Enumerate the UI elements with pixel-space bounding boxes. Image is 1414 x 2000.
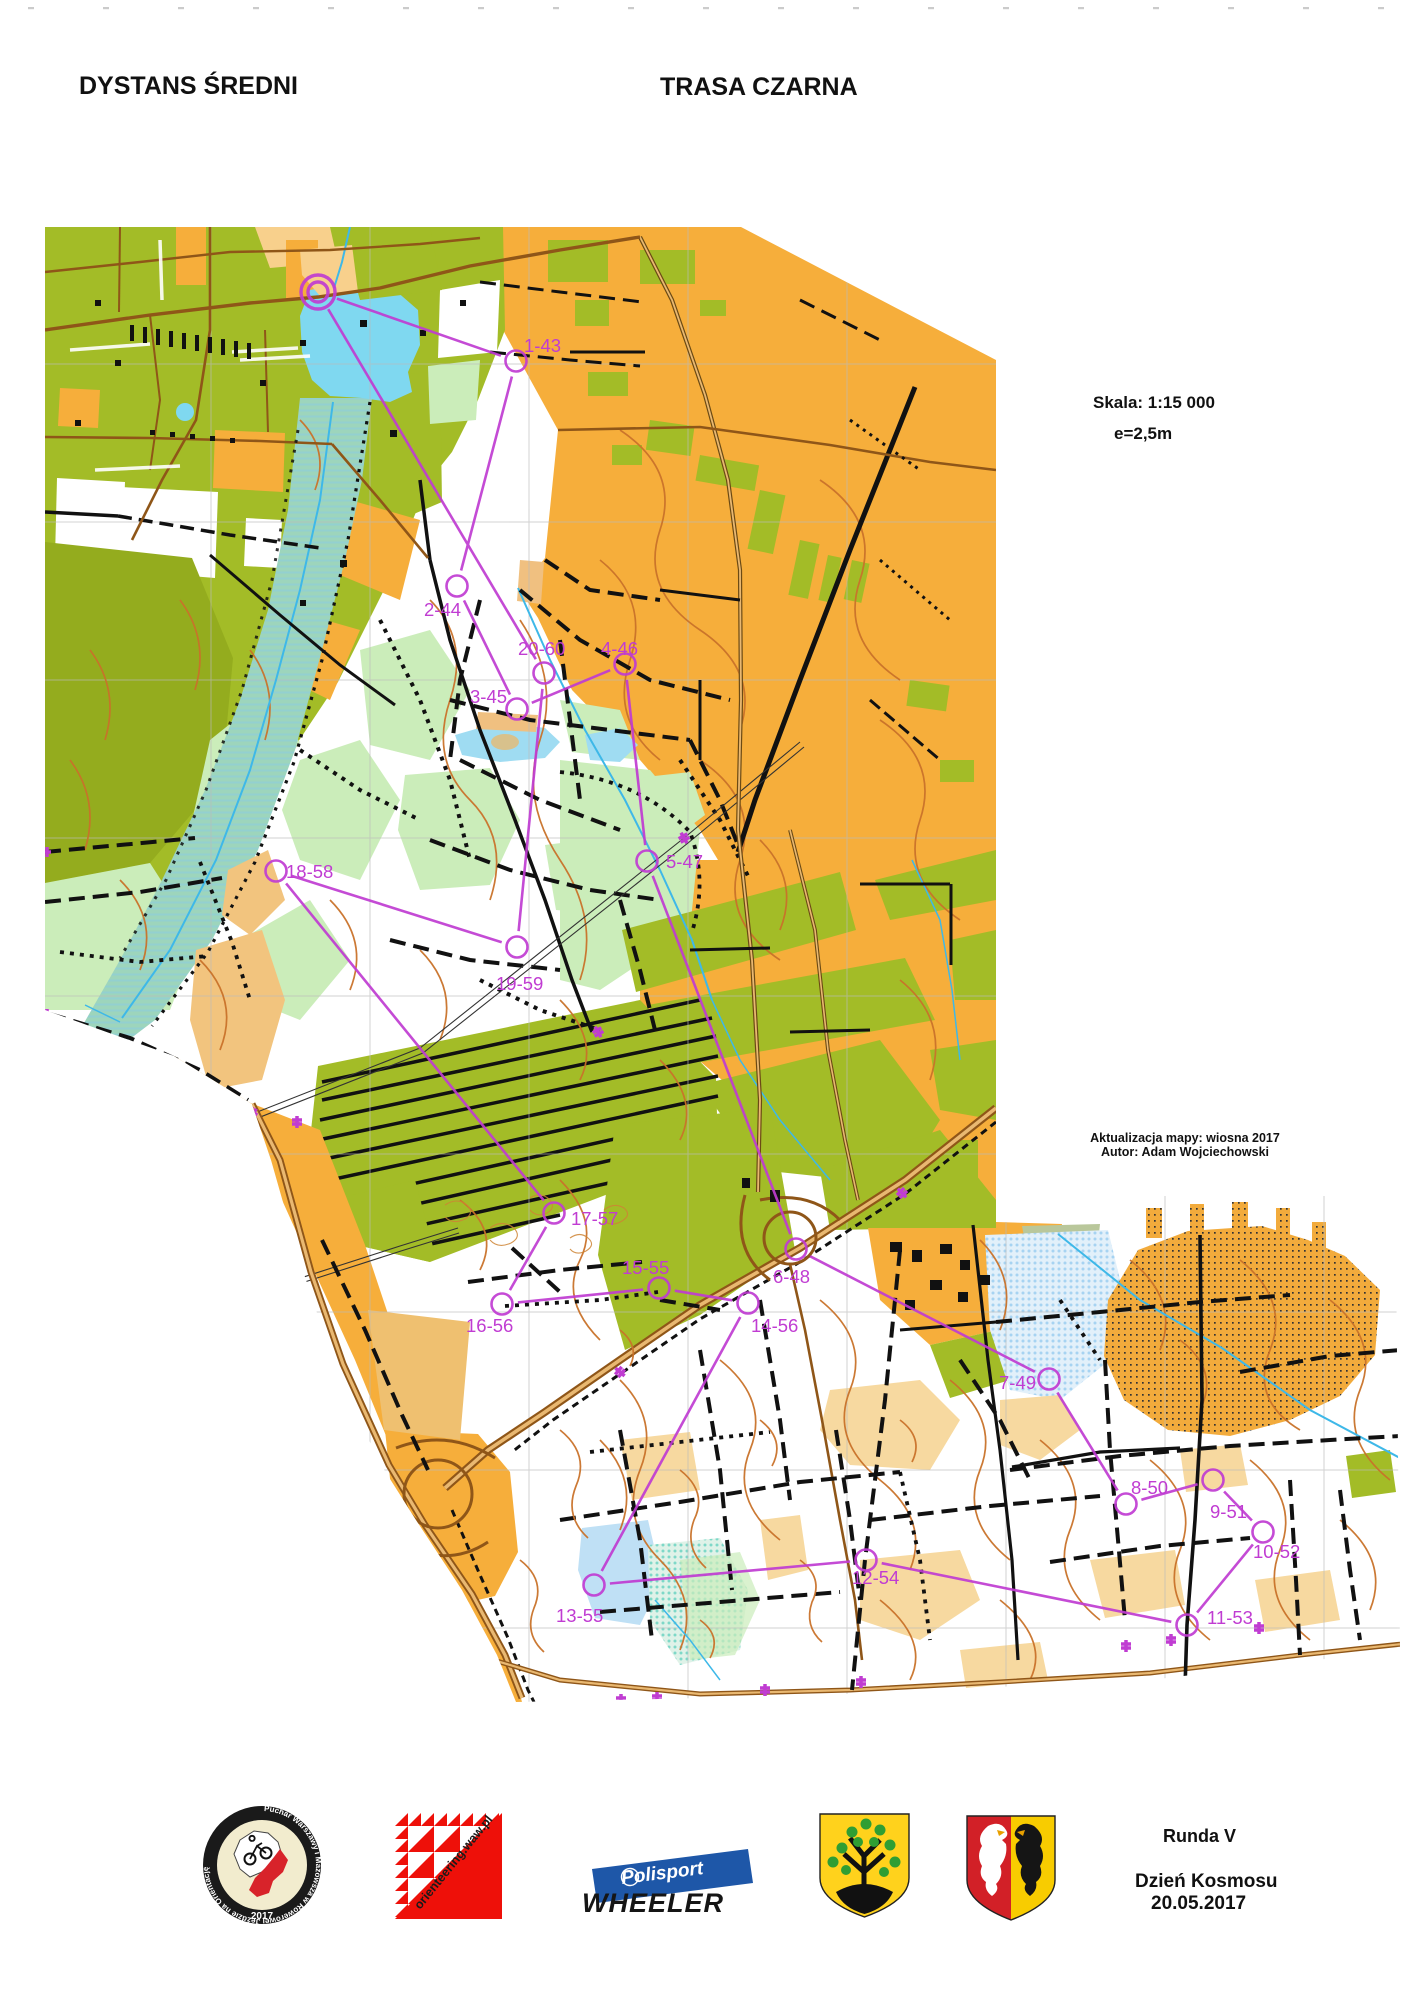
svg-text:7-49: 7-49 [999, 1372, 1036, 1393]
svg-text:1-43: 1-43 [524, 335, 561, 356]
svg-text:13-55: 13-55 [556, 1605, 603, 1626]
svg-text:2017: 2017 [251, 1911, 274, 1922]
svg-text:9-51: 9-51 [1210, 1501, 1247, 1522]
svg-text:3-45: 3-45 [470, 686, 507, 707]
svg-text:10-52: 10-52 [1253, 1541, 1300, 1562]
svg-text:12-54: 12-54 [852, 1567, 899, 1588]
svg-text:14-56: 14-56 [751, 1315, 798, 1336]
svg-text:20-60: 20-60 [518, 638, 565, 659]
svg-text:4-46: 4-46 [601, 638, 638, 659]
svg-text:2-44: 2-44 [424, 599, 461, 620]
svg-text:11-53: 11-53 [1207, 1607, 1253, 1628]
svg-text:19-59: 19-59 [496, 973, 543, 994]
svg-text:15-55: 15-55 [622, 1257, 669, 1278]
svg-text:6-48: 6-48 [773, 1266, 810, 1287]
svg-text:16-56: 16-56 [466, 1315, 513, 1336]
svg-text:17-57: 17-57 [571, 1208, 618, 1229]
svg-text:5-47: 5-47 [666, 851, 703, 872]
svg-text:8-50: 8-50 [1131, 1477, 1168, 1498]
svg-text:WHEELER: WHEELER [582, 1888, 724, 1918]
svg-text:18-58: 18-58 [286, 861, 333, 882]
